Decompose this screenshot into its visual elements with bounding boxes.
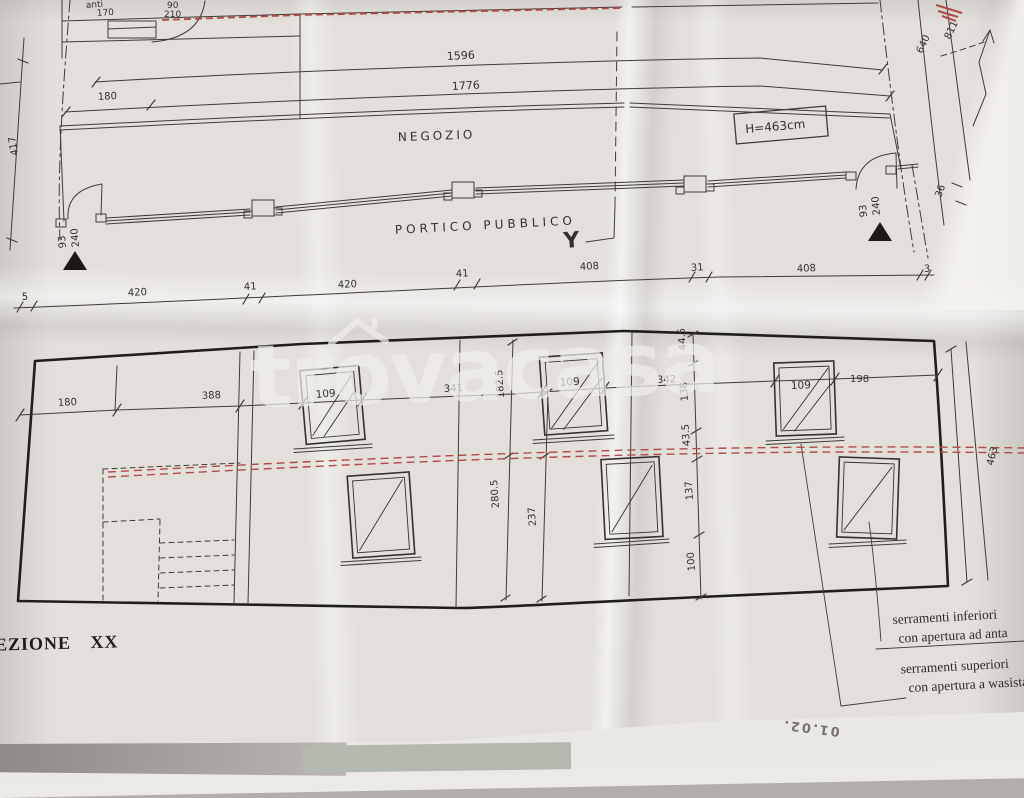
dim-bottom-420a: 420 (128, 287, 148, 299)
dim-1776: 1776 (451, 79, 480, 93)
red-level-line (108, 447, 1024, 477)
trovacasa-watermark: trovacasa (248, 310, 719, 429)
dim-180-section: 180 (58, 397, 78, 409)
dim-bottom-5: 5 (22, 292, 29, 303)
note-upper-windows: serramenti superiori con apertura a wasi… (900, 653, 1024, 698)
dim-463: 463 (985, 446, 1000, 467)
watermark-roof-icon (328, 317, 391, 345)
label-section-y: Y (562, 228, 582, 254)
dim-36: 36 (933, 183, 948, 199)
dim-811: 811 (943, 19, 961, 41)
plan-labels: anti 170 90 210 1596 1776 180 NEGOZIO 41… (7, 0, 961, 303)
dim-bottom-408a: 408 (580, 261, 600, 273)
upper-window-3 (774, 361, 837, 436)
lower-window-1 (347, 472, 415, 558)
dim-170: 170 (97, 8, 115, 19)
plan-linework (0, 0, 994, 312)
dim-bottom-41a: 41 (244, 281, 257, 293)
dim-137: 137 (684, 481, 696, 501)
watermark-text-2: vacasa (388, 310, 719, 424)
photo-of-architectural-drawing: { "plan": { "labels": { "room": "anti", … (0, 0, 1024, 768)
dim-93-left: 93 (57, 235, 69, 249)
dim-100: 100 (686, 552, 698, 572)
dim-bottom-408b: 408 (797, 263, 817, 275)
green-paper-strip (303, 742, 571, 773)
dim-bottom-41b: 41 (456, 268, 469, 280)
lower-window-3 (837, 457, 900, 539)
dim-43-5: 43.5 (680, 424, 693, 447)
lower-window-2 (601, 457, 663, 540)
dim-237: 237 (527, 507, 539, 527)
dim-180-plan: 180 (98, 91, 118, 103)
watermark-text-1: tr (248, 323, 333, 429)
section-title: EZIONE XX (0, 631, 119, 655)
dim-417: 417 (7, 136, 21, 157)
dim-198: 198 (850, 374, 869, 385)
dim-280-5: 280.5 (489, 479, 502, 508)
red-boundary-line (162, 5, 962, 21)
dim-240-left: 240 (69, 228, 82, 248)
label-portico: PORTICO PUBBLICO (395, 213, 577, 236)
dim-388: 388 (202, 390, 222, 402)
dim-1596: 1596 (446, 49, 475, 63)
dim-bottom-31: 31 (691, 262, 704, 274)
dim-bottom-420b: 420 (338, 279, 358, 291)
window-label-3: 109 (791, 379, 811, 392)
drawing-sheet: anti 170 90 210 1596 1776 180 NEGOZIO 41… (0, 0, 1024, 768)
label-height: H=463cm (745, 117, 806, 136)
dim-210: 210 (164, 10, 181, 20)
label-negozio: NEGOZIO (398, 127, 476, 144)
note-lower-windows: serramenti inferiori con apertura ad ant… (892, 604, 1008, 648)
dim-93-right: 93 (858, 204, 870, 218)
dim-240-right: 240 (870, 196, 883, 216)
dim-640: 640 (915, 33, 933, 55)
dim-bottom-3: 3 (924, 264, 931, 275)
